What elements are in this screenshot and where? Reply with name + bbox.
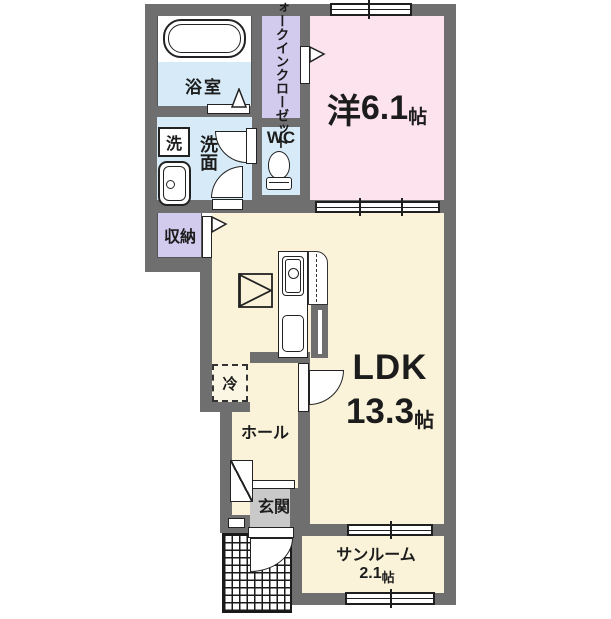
wc-door-jamb [246,128,257,164]
stove-triangle-icon [238,273,273,308]
washer-label: 洗 [166,130,182,154]
entrance-niche [228,518,245,528]
window [347,524,433,536]
kitchen-unit [278,251,308,358]
western-room-label: 洋6.1帖 [315,86,439,130]
fridge-box: 冷 [212,364,248,402]
western-room-name: 洋 [327,84,361,133]
kitchen-faucet-icon [288,268,299,279]
entrance-step [252,480,295,489]
window-tick [368,0,370,19]
wall [444,4,456,605]
washroom-label: 洗面 [196,127,220,179]
bathtub-inner [168,24,241,53]
sink-drain [166,180,175,189]
sunroom-size-label: 2.1帖 [346,565,408,583]
wic-label: ウォークイン クローゼット [262,16,300,120]
wic-door-jamb [300,46,310,84]
kitchen-wall-slit [318,310,322,354]
washing-machine-box: 洗 [158,127,190,157]
kitchen-cabinet-icon [282,315,304,352]
western-room-unit: 帖 [408,102,427,129]
window [345,592,435,605]
storage-door-jamb [202,216,212,258]
kitchen-counter [308,251,328,305]
sunroom-unit: 帖 [382,567,395,586]
shoe-cabinet-icon [230,460,253,502]
ldk-size-label: 13.3帖 [336,394,444,430]
entrance-door-sill [248,527,294,538]
wall [200,402,250,412]
fridge-label: 冷 [222,373,237,394]
wall [145,4,157,272]
window-tick [390,589,392,608]
sunroom-size: 2.1 [359,565,381,583]
toilet-tank-icon [266,177,292,190]
western-room-size: 6.1 [361,89,408,128]
toilet-bowl-icon [268,151,290,179]
wic-label-line2: クローゼット [272,68,291,149]
washroom-door-sill [212,199,243,210]
bathtub-icon [163,19,246,58]
kitchen-sink-icon [282,256,304,296]
hall-label: ホール [236,421,294,441]
wall [300,13,310,212]
storage-label: 収納 [160,226,200,244]
ldk-size: 13.3 [346,392,414,432]
window-tick [390,521,392,539]
window-tick [359,198,361,216]
door-flag-icon [212,216,228,233]
bath-label: 浴室 [172,75,236,95]
window-tick [401,198,403,216]
sink-icon [158,161,191,206]
kitchen-counter-dash [316,254,317,302]
ldk-door-jamb [298,363,309,412]
window [330,3,412,16]
toilet-tank-line [269,182,289,183]
ldk-unit: 帖 [414,404,434,433]
sunroom-name: サンルーム [330,543,422,563]
wall [200,258,212,412]
floor-plan: 洗 冷 浴室 洗面 WC ウォークイン クローゼット 洋6.1帖 収納 LD [0,0,611,619]
entrance-label: 玄関 [254,496,294,514]
wic-label-line1: ウォークイン [272,0,291,68]
wall [252,15,262,212]
door-flag-icon [310,46,326,63]
ldk-name: LDK [340,350,440,386]
window [315,201,440,213]
